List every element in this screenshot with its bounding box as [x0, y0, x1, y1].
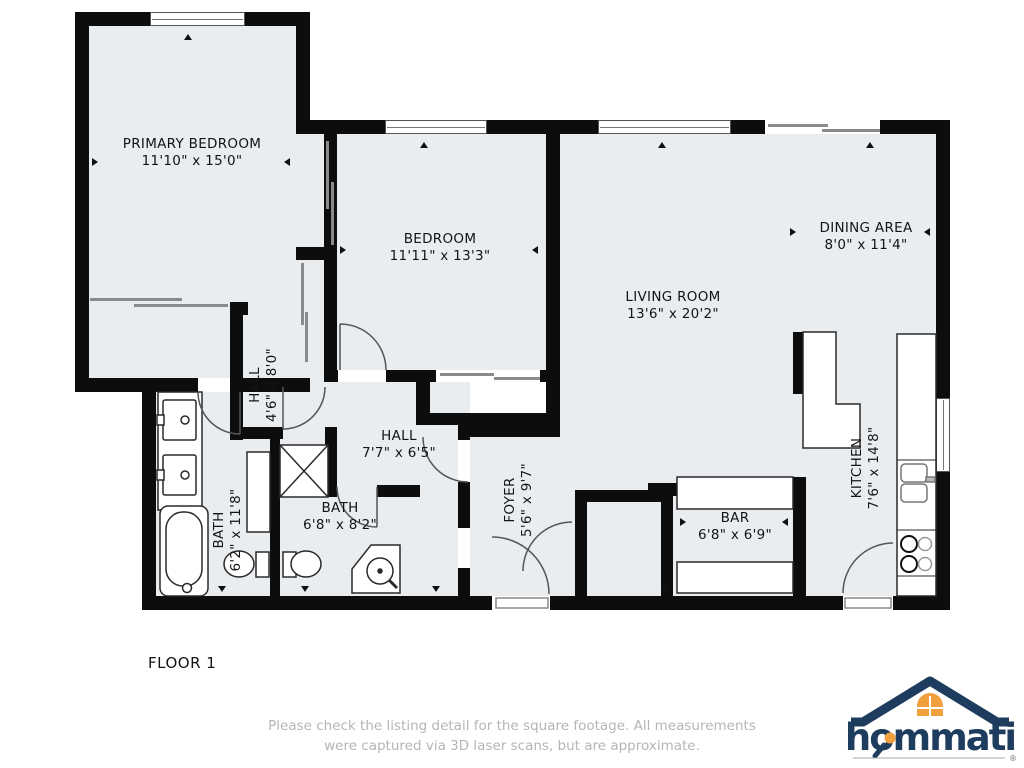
room-label-living-room: LIVING ROOM 13'6" x 20'2"	[625, 289, 720, 323]
sliding-door-line	[90, 298, 182, 301]
wall	[75, 378, 198, 392]
room-name: BAR	[698, 510, 772, 527]
wall	[296, 247, 337, 260]
sliding-door-line	[331, 182, 334, 245]
door-opening	[458, 440, 470, 482]
room-name: DINING AREA	[820, 220, 913, 237]
room-label-bath-primary: BATH 6'2" x 11'8"	[211, 489, 245, 572]
door-opening	[458, 528, 470, 568]
door-opening	[843, 596, 893, 610]
sliding-door-line	[822, 129, 880, 132]
room-dims: 8'0" x 11'4"	[820, 237, 913, 254]
room-label-bedroom: BEDROOM 11'11" x 13'3"	[390, 231, 491, 265]
floor-label: FLOOR 1	[148, 654, 216, 672]
wall	[270, 427, 280, 596]
room-name: BEDROOM	[390, 231, 491, 248]
room-label-hall-upper: HALL 4'6" x 8'0"	[247, 348, 281, 422]
room-label-kitchen: KITCHEN 7'6" x 14'8"	[849, 427, 883, 510]
wall	[793, 332, 803, 394]
wall	[648, 483, 677, 496]
sliding-door-line	[301, 263, 304, 325]
room-dims: 11'10" x 15'0"	[123, 153, 261, 170]
registered-mark: ®	[1009, 754, 1017, 763]
window	[150, 12, 245, 26]
sliding-door-line	[305, 312, 308, 362]
sliding-door	[436, 370, 540, 382]
room-name: PRIMARY BEDROOM	[123, 136, 261, 153]
room-dims: 5'6" x 9'7"	[519, 463, 536, 537]
room-dims: 4'6" x 8'0"	[264, 348, 281, 422]
wall	[416, 413, 560, 425]
room-dims: 7'7" x 6'5"	[362, 445, 436, 462]
room-name: FOYER	[502, 463, 519, 537]
room-label-dining-area: DINING AREA 8'0" x 11'4"	[820, 220, 913, 254]
floor-plan: PRIMARY BEDROOM 11'10" x 15'0" BEDROOM 1…	[0, 0, 1024, 768]
wall	[416, 382, 430, 413]
door-opening	[492, 596, 550, 610]
sliding-door-line	[134, 304, 228, 307]
room-label-bar: BAR 6'8" x 6'9"	[698, 510, 772, 544]
room-label-hall-lower: HALL 7'7" x 6'5"	[362, 428, 436, 462]
wall	[575, 490, 587, 596]
room-name: HALL	[362, 428, 436, 445]
window	[936, 398, 950, 472]
wall	[661, 490, 673, 596]
window	[598, 120, 731, 134]
wall	[377, 485, 420, 497]
hommati-logo-graphic: hommati ®	[845, 668, 1017, 766]
room-label-primary-bedroom: PRIMARY BEDROOM 11'10" x 15'0"	[123, 136, 261, 170]
room-dims: 7'6" x 14'8"	[866, 427, 883, 510]
wall	[142, 392, 156, 610]
hommati-logo: hommati ®	[845, 668, 1017, 766]
room-dims: 6'2" x 11'8"	[228, 489, 245, 572]
room-dims: 13'6" x 20'2"	[625, 306, 720, 323]
room-dims: 11'11" x 13'3"	[390, 248, 491, 265]
wall	[75, 12, 89, 392]
room-name: BATH	[303, 500, 377, 517]
room-dims: 6'8" x 8'2"	[303, 517, 377, 534]
room-name: BATH	[211, 489, 228, 572]
window	[385, 120, 487, 134]
wall	[296, 12, 310, 134]
wall	[386, 370, 436, 382]
sliding-door-line	[326, 141, 329, 209]
sliding-door-line	[494, 377, 540, 380]
brand-name: hommati	[845, 716, 1015, 759]
room-name: HALL	[247, 348, 264, 422]
wall	[458, 425, 560, 437]
wall	[936, 120, 950, 610]
wall	[324, 370, 338, 382]
sliding-door-line	[440, 373, 494, 376]
wall	[230, 302, 243, 440]
room-label-bath-hall: BATH 6'8" x 8'2"	[303, 500, 377, 534]
room-name: LIVING ROOM	[625, 289, 720, 306]
room-dims: 6'8" x 6'9"	[698, 527, 772, 544]
room-name: KITCHEN	[849, 427, 866, 510]
wall	[793, 477, 806, 596]
wall	[324, 260, 337, 382]
door-opening	[338, 370, 386, 382]
sliding-door-line	[768, 124, 828, 127]
wall	[327, 485, 337, 497]
wall	[540, 370, 560, 382]
room-label-foyer: FOYER 5'6" x 9'7"	[502, 463, 536, 537]
